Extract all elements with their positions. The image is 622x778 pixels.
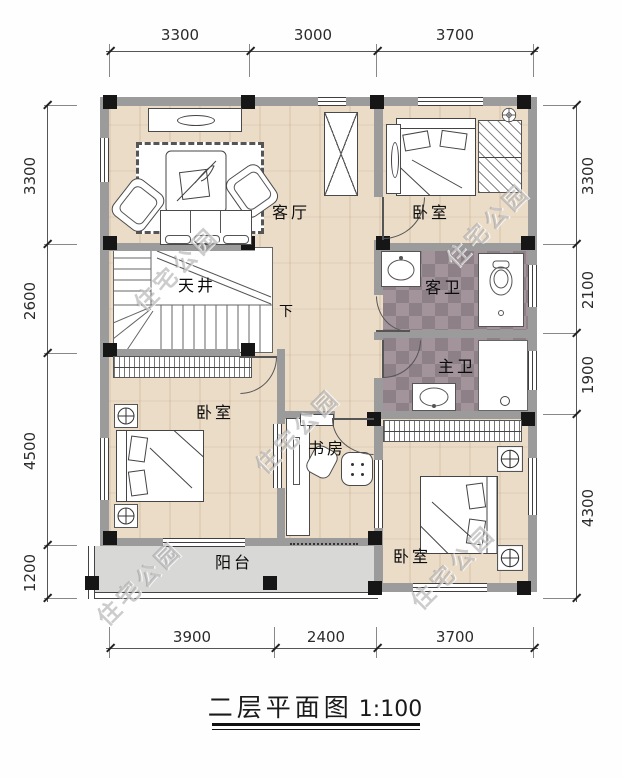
tv-cabinet-living	[148, 108, 242, 132]
dim-top-2: 3000	[283, 26, 343, 44]
wall-center-v5	[374, 426, 383, 460]
column-marker	[241, 343, 255, 357]
window-left-bedroomL	[100, 438, 109, 500]
column-marker	[521, 412, 535, 426]
dim-line-right	[576, 104, 577, 602]
balcony-plant-line	[290, 539, 358, 545]
column-marker	[370, 95, 384, 109]
column-marker	[517, 581, 531, 595]
room-label-bedroomTR: 卧室	[412, 204, 450, 223]
dim-top-3: 3700	[425, 26, 485, 44]
room-label-bedroomL: 卧室	[196, 404, 234, 423]
dim-top-1: 3300	[150, 26, 210, 44]
dim-ext	[44, 244, 77, 245]
room-label-bedroomBR: 卧室	[393, 548, 431, 567]
dim-right-4: 4300	[579, 478, 597, 538]
dim-bottom-1: 3900	[162, 628, 222, 646]
dim-ext	[44, 105, 77, 106]
window-right-masterbath	[528, 351, 537, 390]
nightstand	[114, 504, 138, 528]
dim-right-2: 2100	[579, 260, 597, 320]
dim-ext	[543, 598, 577, 599]
sofa-cushion	[223, 235, 249, 244]
dim-ext	[543, 105, 577, 106]
room-label-balcony: 阳台	[215, 554, 253, 573]
bed-bedroomL	[116, 430, 204, 502]
sofa-seam	[220, 211, 221, 233]
dim-ext	[44, 545, 77, 546]
wall-center-v4	[374, 378, 383, 412]
dim-ext	[543, 244, 577, 245]
column-marker	[517, 95, 531, 109]
dim-ext	[376, 627, 377, 658]
column-marker	[103, 343, 117, 357]
hall-cabinet-x	[324, 112, 358, 196]
drawing-scale: 1:100	[359, 697, 422, 722]
column-marker	[103, 95, 117, 109]
wall-bedroomBR-top	[377, 411, 528, 419]
dim-right-1: 3300	[579, 146, 597, 206]
tv-unit-bedroomTR	[386, 124, 401, 194]
dim-bottom-3: 3700	[425, 628, 485, 646]
coffee-table	[165, 150, 227, 214]
column-marker	[521, 236, 535, 250]
dim-bottom-2: 2400	[296, 628, 356, 646]
column-marker	[85, 576, 99, 590]
dim-left-3: 4500	[21, 421, 39, 481]
dim-ext	[274, 627, 275, 658]
dim-ext	[543, 333, 577, 334]
title-underline-thick	[212, 723, 420, 726]
toilet-guestbath	[478, 253, 524, 327]
title-underline-thin	[212, 729, 420, 730]
room-label-study: 书房	[308, 440, 346, 459]
dim-ext	[543, 414, 577, 415]
stairs-down-label: 下	[279, 305, 296, 322]
wall-center-v3	[374, 332, 383, 340]
sink-masterbath	[412, 383, 456, 411]
dim-left-4: 1200	[21, 543, 39, 603]
dim-ext	[44, 598, 77, 599]
column-marker	[263, 576, 277, 590]
sink-guestbath	[381, 251, 421, 287]
dim-ext	[109, 627, 110, 658]
dim-ext	[44, 353, 77, 354]
balcony-railing-left	[88, 546, 95, 599]
bed-bedroomTR	[396, 118, 476, 196]
floor-plan-sheet: 客厅 卧室 天井 客卫 主卫 卧室 书房 卧室 阳台 下 住宅公园 住宅公园 住…	[0, 0, 622, 778]
wall-bedL-study-2	[277, 488, 285, 538]
wall-center-v1	[374, 106, 383, 197]
dim-ext	[533, 627, 534, 658]
drawing-title-block: 二层平面图1:100	[170, 688, 460, 724]
column-marker	[103, 236, 117, 250]
window-top-small	[318, 97, 346, 106]
plant-icon	[500, 106, 518, 124]
column-marker	[103, 531, 117, 545]
dim-line-bottom	[106, 648, 538, 649]
nightstand	[114, 404, 138, 428]
window-left-living	[100, 138, 109, 182]
shower-drain	[500, 396, 510, 406]
dim-line-top	[106, 51, 538, 52]
column-marker	[368, 531, 382, 545]
window-top-bedroomTR	[418, 97, 483, 106]
wardrobe-bedroomL	[113, 356, 252, 378]
sliding-door-bedroomBR	[374, 460, 383, 528]
column-marker	[368, 581, 382, 595]
drawing-title: 二层平面图	[208, 695, 353, 722]
nightstand	[497, 446, 523, 472]
column-marker	[241, 95, 255, 109]
dim-right-3: 1900	[579, 345, 597, 405]
nightstand	[497, 545, 523, 571]
tv-set	[177, 115, 215, 126]
room-label-guestbath: 客卫	[425, 279, 463, 298]
room-label-living: 客厅	[272, 204, 310, 223]
wall-right	[528, 97, 537, 592]
window-right-bedroomBR	[528, 458, 537, 515]
wardrobe-bedroomBR	[383, 420, 522, 442]
window-right-guestbath	[528, 265, 537, 307]
room-label-masterbath: 主卫	[438, 358, 476, 377]
wall-bedL-study-1	[277, 349, 285, 424]
dim-left-1: 3300	[21, 146, 39, 206]
dim-left-2: 2600	[21, 271, 39, 331]
tv-screen	[391, 142, 399, 178]
